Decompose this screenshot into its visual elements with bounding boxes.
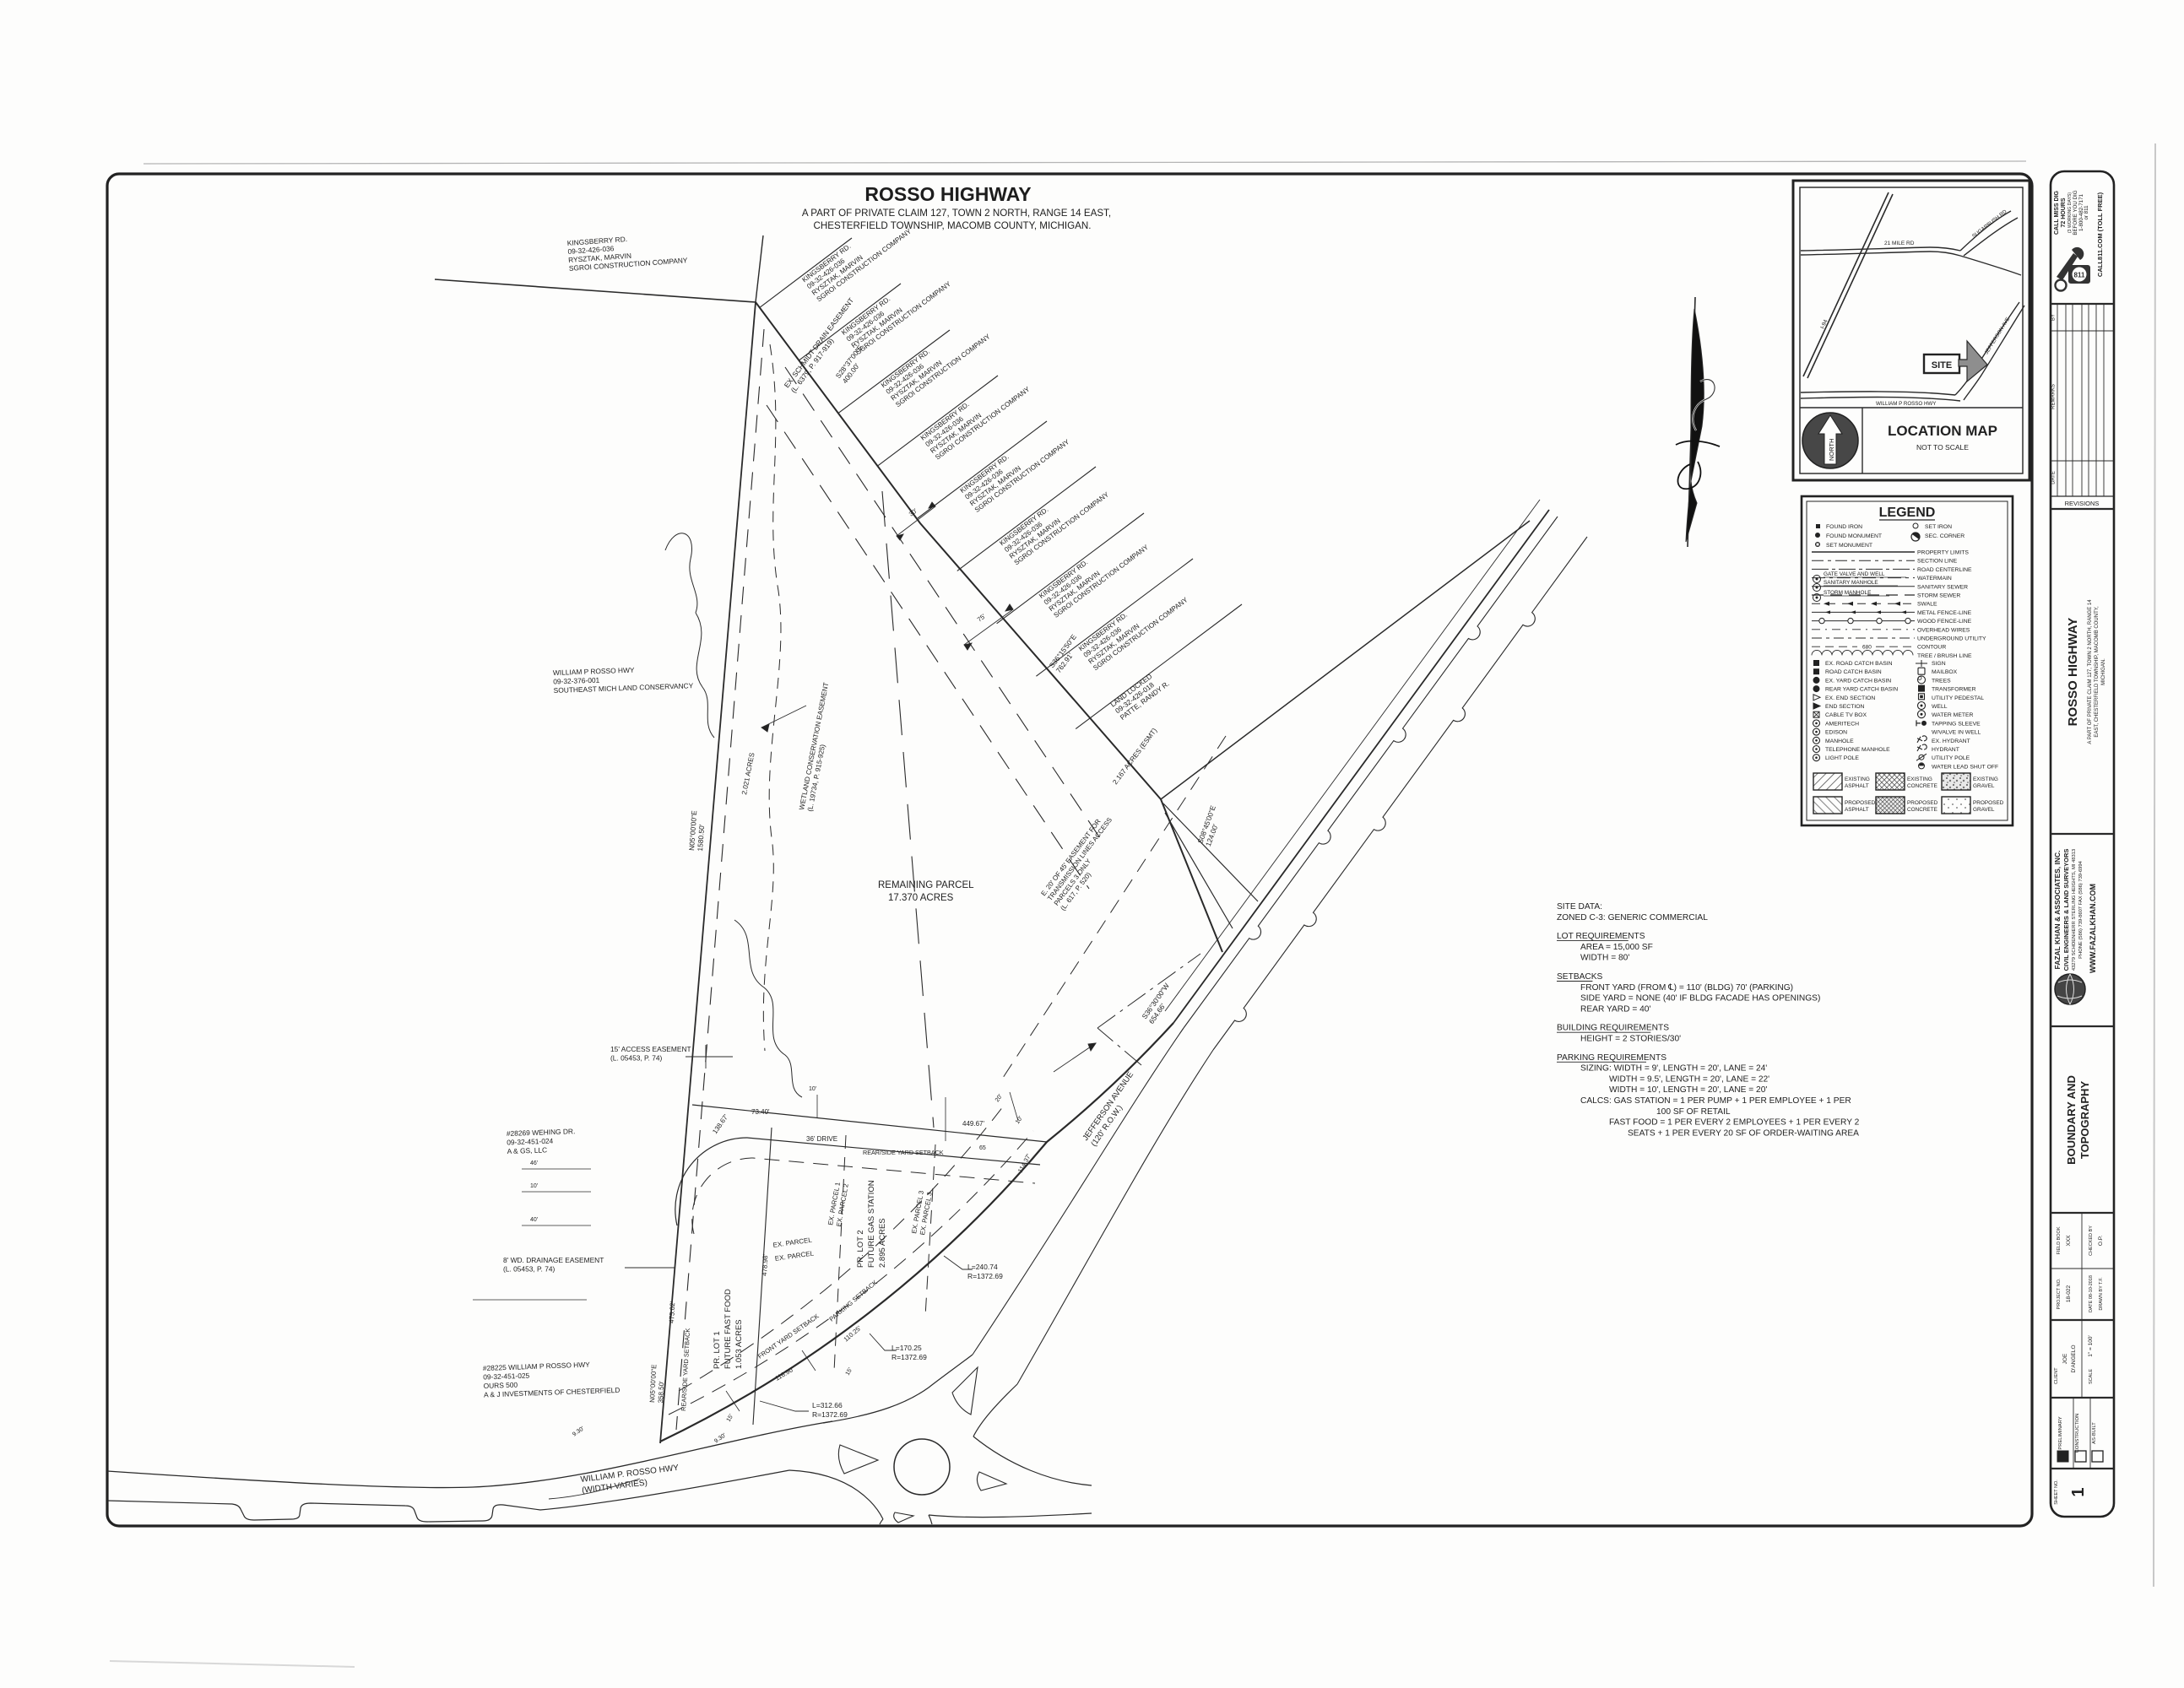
svg-text:1.053 ACRES: 1.053 ACRES <box>734 1319 744 1369</box>
svg-text:WIDTH = 9.5', LENGTH = 20', LA: WIDTH = 9.5', LENGTH = 20', LANE = 22' <box>1609 1074 1769 1084</box>
svg-text:PARKING REQUIREMENTS: PARKING REQUIREMENTS <box>1557 1053 1666 1063</box>
svg-text:SIGN: SIGN <box>1932 661 1946 667</box>
svg-text:CALCS: GAS STATION = 1 PER PUM: CALCS: GAS STATION = 1 PER PUMP + 1 PER … <box>1580 1096 1851 1106</box>
svg-text:PROJECT NO.: PROJECT NO. <box>2057 1278 2062 1309</box>
svg-text:EXISTING: EXISTING <box>1907 776 1932 782</box>
svg-text:SEATS + 1 PER EVERY 20 SF OF O: SEATS + 1 PER EVERY 20 SF OF ORDER-WAITI… <box>1628 1128 1859 1138</box>
svg-text:PROPOSED: PROPOSED <box>1973 800 2004 806</box>
svg-text:ROSSO HIGHWAY: ROSSO HIGHWAY <box>864 183 1031 205</box>
svg-text:EX. END SECTION: EX. END SECTION <box>1825 695 1875 701</box>
svg-text:10': 10' <box>530 1183 538 1189</box>
svg-text:BUILDING REQUIREMENTS: BUILDING REQUIREMENTS <box>1557 1024 1669 1033</box>
svg-text:WILLIAM P ROSSO HWY: WILLIAM P ROSSO HWY <box>1876 401 1936 407</box>
svg-text:W/VALVE IN WELL: W/VALVE IN WELL <box>1932 730 1981 736</box>
svg-text:WWW.FAZALKHAN.COM: WWW.FAZALKHAN.COM <box>2089 884 2097 973</box>
svg-text:MAILBOX: MAILBOX <box>1932 669 1958 675</box>
svg-text:CLIENT: CLIENT <box>2054 1367 2059 1384</box>
svg-text:UNDERGROUND UTILITY: UNDERGROUND UTILITY <box>1917 636 1986 642</box>
svg-text:FOUND MONUMENT: FOUND MONUMENT <box>1826 533 1882 539</box>
svg-text:HYDRANT: HYDRANT <box>1932 747 1959 753</box>
svg-text:PROPOSED: PROPOSED <box>1845 800 1876 806</box>
svg-text:40': 40' <box>530 1217 538 1223</box>
svg-text:CONSTRUCTION: CONSTRUCTION <box>2075 1414 2080 1453</box>
svg-text:REVISIONS: REVISIONS <box>2065 500 2100 507</box>
svg-text:CIVIL ENGINEERS & LAND SURVEYO: CIVIL ENGINEERS & LAND SURVEYORS <box>2062 849 2070 971</box>
svg-text:PR. LOT 1: PR. LOT 1 <box>713 1331 722 1369</box>
svg-text:SITE DATA:: SITE DATA: <box>1557 902 1602 912</box>
svg-text:8' WD. DRAINAGE EASEMENT: 8' WD. DRAINAGE EASEMENT <box>503 1256 604 1264</box>
svg-text:XXX: XXX <box>2066 1235 2072 1247</box>
svg-text:15' ACCESS EASEMENT: 15' ACCESS EASEMENT <box>610 1045 691 1053</box>
svg-text:UTILITY POLE: UTILITY POLE <box>1932 755 1970 761</box>
svg-text:R=1372.69: R=1372.69 <box>967 1272 1003 1280</box>
svg-text:EDISON: EDISON <box>1825 730 1847 736</box>
svg-text:CABLE TV BOX: CABLE TV BOX <box>1825 712 1867 718</box>
svg-text:STORM SEWER: STORM SEWER <box>1917 593 1960 599</box>
svg-text:73.40': 73.40' <box>751 1108 770 1116</box>
svg-text:DATE: DATE <box>2051 471 2057 484</box>
svg-text:GRAVEL: GRAVEL <box>1973 807 1995 813</box>
svg-text:FIELD BOOK: FIELD BOOK <box>2057 1226 2062 1254</box>
svg-text:SEC. CORNER: SEC. CORNER <box>1925 533 1965 539</box>
svg-text:17.370 ACRES: 17.370 ACRES <box>888 893 954 903</box>
svg-text:TRANSFORMER: TRANSFORMER <box>1932 687 1976 693</box>
svg-text:(L. 05453, P. 74): (L. 05453, P. 74) <box>503 1265 555 1274</box>
svg-text:O.P.: O.P. <box>2098 1236 2104 1246</box>
svg-text:MICHIGAN.: MICHIGAN. <box>2101 658 2106 685</box>
svg-text:L=312.66: L=312.66 <box>812 1401 843 1409</box>
svg-text:09-32-451-025: 09-32-451-025 <box>483 1371 530 1382</box>
svg-text:REMAINING PARCEL: REMAINING PARCEL <box>878 880 974 890</box>
svg-text:SIZING: WIDTH = 9', LENGTH = 2: SIZING: WIDTH = 9', LENGTH = 20', LANE =… <box>1580 1064 1767 1074</box>
svg-text:ASPHALT: ASPHALT <box>1845 807 1869 813</box>
svg-text:GRAVEL: GRAVEL <box>1973 783 1995 789</box>
svg-text:A PART OF PRIVATE CLAIM 127, T: A PART OF PRIVATE CLAIM 127, TOWN 2 NORT… <box>802 208 1111 219</box>
svg-text:SETBACKS: SETBACKS <box>1557 972 1603 982</box>
svg-text:680: 680 <box>1862 645 1872 651</box>
svg-text:478.98': 478.98' <box>761 1253 769 1276</box>
svg-text:36' DRIVE: 36' DRIVE <box>806 1135 837 1143</box>
svg-text:OURS 500: OURS 500 <box>483 1381 518 1390</box>
svg-text:REMARKS: REMARKS <box>2051 384 2057 409</box>
svg-text:METAL FENCE-LINE: METAL FENCE-LINE <box>1917 610 1972 616</box>
svg-text:FUTURE GAS STATION: FUTURE GAS STATION <box>867 1180 876 1268</box>
svg-text:LEGEND: LEGEND <box>1879 506 1936 520</box>
svg-text:21 MILE RD: 21 MILE RD <box>1884 241 1915 246</box>
svg-text:BEFORE YOU DIG: BEFORE YOU DIG <box>2073 190 2078 235</box>
svg-text:LIGHT POLE: LIGHT POLE <box>1825 755 1859 761</box>
svg-text:L=240.74: L=240.74 <box>967 1263 998 1271</box>
svg-text:SECTION LINE: SECTION LINE <box>1917 559 1958 565</box>
svg-text:DATE 08-10-2018: DATE 08-10-2018 <box>2089 1275 2094 1312</box>
svg-text:65: 65 <box>979 1145 986 1151</box>
svg-text:BY: BY <box>2051 314 2057 321</box>
svg-text:EX. HYDRANT: EX. HYDRANT <box>1932 738 1970 744</box>
svg-text:REAR YARD = 40': REAR YARD = 40' <box>1580 1004 1650 1014</box>
svg-text:EX. YARD CATCH BASIN: EX. YARD CATCH BASIN <box>1825 678 1891 684</box>
svg-text:PRELIMINARY: PRELIMINARY <box>2058 1416 2063 1449</box>
svg-text:PROPOSED: PROPOSED <box>1907 800 1938 806</box>
svg-text:SANITARY MANHOLE: SANITARY MANHOLE <box>1824 580 1878 586</box>
svg-text:OVERHEAD WIRES: OVERHEAD WIRES <box>1917 627 1970 633</box>
svg-text:LOT REQUIREMENTS: LOT REQUIREMENTS <box>1557 932 1645 941</box>
svg-text:EX. ROAD CATCH BASIN: EX. ROAD CATCH BASIN <box>1825 661 1893 667</box>
svg-text:LOCATION MAP: LOCATION MAP <box>1888 423 1997 439</box>
svg-text:EXISTING: EXISTING <box>1845 776 1870 782</box>
svg-text:A & GS, LLC: A & GS, LLC <box>507 1145 547 1155</box>
svg-text:GATE VALVE AND WELL: GATE VALVE AND WELL <box>1824 571 1885 577</box>
svg-text:NOT TO SCALE: NOT TO SCALE <box>1916 443 1969 452</box>
svg-text:D'ANGELO: D'ANGELO <box>2071 1344 2077 1372</box>
svg-text:NORTH: NORTH <box>1828 438 1835 461</box>
svg-text:SET MONUMENT: SET MONUMENT <box>1826 543 1872 549</box>
svg-text:CONCRETE: CONCRETE <box>1907 807 1937 813</box>
svg-text:WELL: WELL <box>1932 704 1948 710</box>
svg-text:FOUND IRON: FOUND IRON <box>1826 524 1862 530</box>
svg-text:CHECKED BY: CHECKED BY <box>2089 1225 2094 1256</box>
svg-text:475.02': 475.02' <box>668 1301 676 1323</box>
svg-text:ROAD CATCH BASIN: ROAD CATCH BASIN <box>1825 669 1882 675</box>
svg-text:TREE / BRUSH LINE: TREE / BRUSH LINE <box>1917 653 1972 659</box>
svg-text:A PART OF PRIVATE CLAIM 127, T: A PART OF PRIVATE CLAIM 127, TOWN 2 NORT… <box>2088 599 2093 744</box>
svg-text:2.895 ACRES: 2.895 ACRES <box>878 1218 887 1268</box>
svg-text:TOPOGRAPHY: TOPOGRAPHY <box>2078 1081 2091 1160</box>
svg-text:WOOD FENCE-LINE: WOOD FENCE-LINE <box>1917 619 1972 625</box>
svg-text:WIDTH = 10', LENGTH = 20', LAN: WIDTH = 10', LENGTH = 20', LANE = 20' <box>1609 1085 1767 1095</box>
svg-text:DRAWN BY T.F.: DRAWN BY T.F. <box>2099 1277 2104 1311</box>
svg-text:CONCRETE: CONCRETE <box>1907 783 1937 789</box>
svg-text:TREES: TREES <box>1932 678 1951 684</box>
svg-text:R=1372.69: R=1372.69 <box>812 1410 848 1419</box>
svg-text:18-022: 18-022 <box>2066 1285 2072 1303</box>
svg-text:WATERMAIN: WATERMAIN <box>1917 576 1952 582</box>
svg-text:STORM MANHOLE: STORM MANHOLE <box>1824 590 1871 596</box>
svg-text:1: 1 <box>2069 1487 2088 1496</box>
svg-text:PROPERTY LIMITS: PROPERTY LIMITS <box>1917 550 1969 556</box>
svg-text:BOUNDARY AND: BOUNDARY AND <box>2065 1075 2078 1165</box>
svg-text:AMERITECH: AMERITECH <box>1825 721 1859 727</box>
svg-text:FRONT YARD (FROM ℄) = 110' (BL: FRONT YARD (FROM ℄) = 110' (BLDG) 70' (P… <box>1580 983 1793 993</box>
svg-text:PHONE (586) 739-8607 FAX (586): PHONE (586) 739-8607 FAX (586) 739-6994 <box>2078 860 2084 958</box>
svg-text:WIDTH = 80': WIDTH = 80' <box>1580 954 1629 963</box>
svg-text:SWALE: SWALE <box>1917 602 1937 608</box>
svg-text:CHESTERFIELD TOWNSHIP, MACOMB: CHESTERFIELD TOWNSHIP, MACOMB COUNTY, MI… <box>814 220 1092 231</box>
svg-text:REAR YARD CATCH BASIN: REAR YARD CATCH BASIN <box>1825 687 1898 693</box>
svg-text:REAR/SIDE YARD SETBACK: REAR/SIDE YARD SETBACK <box>863 1149 944 1156</box>
svg-text:SET IRON: SET IRON <box>1925 524 1952 530</box>
svg-text:FAST FOOD = 1 PER EVERY 2 EMPL: FAST FOOD = 1 PER EVERY 2 EMPLOYEES + 1 … <box>1609 1118 1860 1128</box>
svg-text:EAST, CHESTERFIELD TOWNSHIP, M: EAST, CHESTERFIELD TOWNSHIP, MACOMB COUN… <box>2095 606 2100 738</box>
svg-text:ASPHALT: ASPHALT <box>1845 783 1869 789</box>
svg-text:ZONED C-3: GENERIC COMMERCIAL: ZONED C-3: GENERIC COMMERCIAL <box>1557 913 1708 922</box>
svg-text:SITE: SITE <box>1932 360 1952 371</box>
svg-text:(L. 05453, P. 74): (L. 05453, P. 74) <box>610 1054 663 1063</box>
svg-text:AREA = 15,000 SF: AREA = 15,000 SF <box>1580 943 1653 952</box>
svg-text:AS-BUILT: AS-BUILT <box>2092 1422 2097 1444</box>
svg-text:ROSSO HIGHWAY: ROSSO HIGHWAY <box>2066 618 2080 727</box>
svg-text:L=170.25: L=170.25 <box>891 1344 922 1352</box>
svg-text:R=1372.69: R=1372.69 <box>891 1353 927 1361</box>
svg-text:UTILITY PEDESTAL: UTILITY PEDESTAL <box>1932 695 1984 701</box>
svg-text:SANITARY SEWER: SANITARY SEWER <box>1917 584 1968 590</box>
svg-text:811: 811 <box>2074 272 2085 279</box>
svg-text:CALL811.COM (TOLL FREE): CALL811.COM (TOLL FREE) <box>2096 192 2104 277</box>
svg-text:449.67': 449.67' <box>962 1120 984 1128</box>
svg-text:JOE: JOE <box>2062 1353 2068 1364</box>
svg-text:WATER METER: WATER METER <box>1932 712 1974 718</box>
svg-text:ROAD CENTERLINE: ROAD CENTERLINE <box>1917 567 1972 573</box>
svg-text:CALL MISS DIG: CALL MISS DIG <box>2054 190 2060 235</box>
svg-text:SCALE: SCALE <box>2089 1369 2094 1384</box>
svg-text:100 SF OF RETAIL: 100 SF OF RETAIL <box>1656 1107 1731 1117</box>
svg-text:or 811: or 811 <box>2084 205 2089 220</box>
svg-text:72 HOURS: 72 HOURS <box>2061 197 2067 227</box>
svg-text:FUTURE FAST FOOD: FUTURE FAST FOOD <box>723 1289 733 1369</box>
svg-text:TELEPHONE MANHOLE: TELEPHONE MANHOLE <box>1825 747 1890 753</box>
svg-text:CONTOUR: CONTOUR <box>1917 645 1946 651</box>
svg-text:358.50': 358.50' <box>657 1381 665 1404</box>
svg-text:MANHOLE: MANHOLE <box>1825 738 1854 744</box>
svg-text:PR. LOT 2: PR. LOT 2 <box>856 1230 865 1268</box>
svg-text:10': 10' <box>809 1086 816 1092</box>
svg-text:HEIGHT = 2 STORIES/30': HEIGHT = 2 STORIES/30' <box>1580 1035 1681 1044</box>
svg-text:SIDE YARD = NONE (40' IF BLDG: SIDE YARD = NONE (40' IF BLDG FACADE HAS… <box>1580 994 1820 1004</box>
svg-text:1" = 100': 1" = 100' <box>2088 1335 2094 1356</box>
svg-text:FAZAL KHAN & ASSOCIATES, INC.: FAZAL KHAN & ASSOCIATES, INC. <box>2053 850 2062 969</box>
svg-text:WATER LEAD SHUT OFF: WATER LEAD SHUT OFF <box>1932 764 1998 770</box>
svg-text:46': 46' <box>530 1160 538 1166</box>
svg-text:43279 SCHOENHERR STERLING HEI: 43279 SCHOENHERR STERLING HEIGHTS, MI 48… <box>2072 849 2077 971</box>
svg-text:SHEET NO.: SHEET NO. <box>2054 1480 2059 1505</box>
svg-text:EXISTING: EXISTING <box>1973 776 1998 782</box>
svg-text:END SECTION: END SECTION <box>1825 704 1865 710</box>
svg-text:TAPPING SLEEVE: TAPPING SLEEVE <box>1932 721 1981 727</box>
